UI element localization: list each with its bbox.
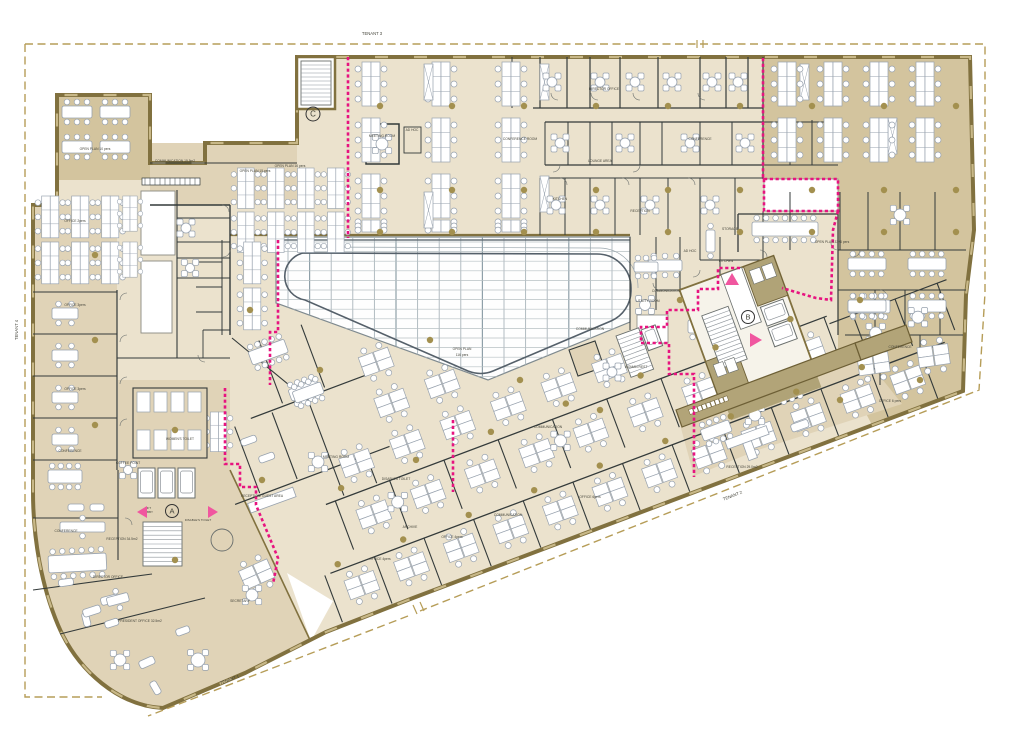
svg-text:COFFEE POINT: COFFEE POINT xyxy=(116,461,140,465)
svg-text:OPEN PLAN: OPEN PLAN xyxy=(453,347,472,351)
svg-text:AD HOC: AD HOC xyxy=(406,128,419,132)
svg-text:CONFERENCE: CONFERENCE xyxy=(888,345,912,349)
svg-text:KITCHEN: KITCHEN xyxy=(553,197,568,201)
svg-text:DISABLES TOILET: DISABLES TOILET xyxy=(382,477,410,481)
svg-text:TENANT 3: TENANT 3 xyxy=(362,31,383,36)
svg-text:MEETING ROOM: MEETING ROOM xyxy=(369,134,395,138)
svg-text:OFFICE 2pers: OFFICE 2pers xyxy=(64,219,86,223)
svg-text:TENANT 4: TENANT 4 xyxy=(14,319,19,340)
svg-text:DISABLE'S TOILET: DISABLE'S TOILET xyxy=(185,518,212,522)
svg-text:CONFERENCE: CONFERENCE xyxy=(58,449,82,453)
svg-text:COMMUNICATION: COMMUNICATION xyxy=(534,425,563,429)
svg-text:CONFERENCE: CONFERENCE xyxy=(688,137,712,141)
svg-text:COMMUNICATION: COMMUNICATION xyxy=(652,289,681,293)
svg-text:LOUNGE AREA: LOUNGE AREA xyxy=(588,159,612,163)
svg-text:CONFERENCE: CONFERENCE xyxy=(54,529,78,533)
svg-text:C: C xyxy=(310,110,316,119)
svg-text:116 pers: 116 pers xyxy=(456,353,469,357)
svg-text:PRESIDENT OFFICE 32.5m2: PRESIDENT OFFICE 32.5m2 xyxy=(118,619,162,623)
svg-text:DIRECTOR OFFICE: DIRECTOR OFFICE xyxy=(93,575,124,579)
svg-text:KITCHEN: KITCHEN xyxy=(719,259,734,263)
svg-text:AD HOC: AD HOC xyxy=(684,249,697,253)
svg-text:COMMUNICATION: COMMUNICATION xyxy=(576,327,605,331)
svg-text:DIRECTOR OFFICE: DIRECTOR OFFICE xyxy=(589,87,620,91)
svg-text:B: B xyxy=(745,313,750,322)
svg-text:CONFERENCE ROOM: CONFERENCE ROOM xyxy=(503,137,538,141)
svg-text:OFFICE 6 pers: OFFICE 6 pers xyxy=(879,399,902,403)
svg-text:OPEN PLAN 16 pers: OPEN PLAN 16 pers xyxy=(275,164,306,168)
svg-text:OFFICE 4pers: OFFICE 4pers xyxy=(369,557,391,561)
svg-text:ARCHIVE: ARCHIVE xyxy=(403,525,418,529)
svg-text:OFFICE 6pers: OFFICE 6pers xyxy=(579,495,601,499)
svg-text:OFFICE 3pers: OFFICE 3pers xyxy=(64,303,86,307)
svg-text:COMMUNICATION 19.5m2: COMMUNICATION 19.5m2 xyxy=(155,159,195,163)
svg-text:RECEPTION 34.5m2: RECEPTION 34.5m2 xyxy=(106,537,137,541)
svg-text:WOMEN'S TOILET: WOMEN'S TOILET xyxy=(166,437,194,441)
svg-text:RECEPTION: RECEPTION xyxy=(630,209,650,213)
svg-text:OPEN PLAN 15 pers: OPEN PLAN 15 pers xyxy=(240,169,271,173)
svg-text:OFFICE 3pers: OFFICE 3pers xyxy=(64,387,86,391)
svg-text:RECEPTION/ GUEST AREA: RECEPTION/ GUEST AREA xyxy=(241,494,284,498)
svg-text:WOMAN REST: WOMAN REST xyxy=(625,365,648,369)
svg-text:OPEN PLAN 33+6 pers: OPEN PLAN 33+6 pers xyxy=(815,240,850,244)
svg-text:OPEN PLAN 10 pers: OPEN PLAN 10 pers xyxy=(80,147,111,151)
svg-text:OFFICE 4pers: OFFICE 4pers xyxy=(441,535,463,539)
svg-text:SECRETARY: SECRETARY xyxy=(230,599,251,603)
svg-text:UTILITY ROOM: UTILITY ROOM xyxy=(636,299,660,303)
svg-text:RECEPTION 29.0m2: RECEPTION 29.0m2 xyxy=(726,465,757,469)
svg-text:COMMUNICATION: COMMUNICATION xyxy=(494,513,523,517)
svg-text:MEETING ROOM: MEETING ROOM xyxy=(323,455,349,459)
svg-text:A: A xyxy=(169,507,174,516)
svg-text:TENANT 2: TENANT 2 xyxy=(722,489,743,501)
svg-text:STORAGE: STORAGE xyxy=(722,227,739,231)
